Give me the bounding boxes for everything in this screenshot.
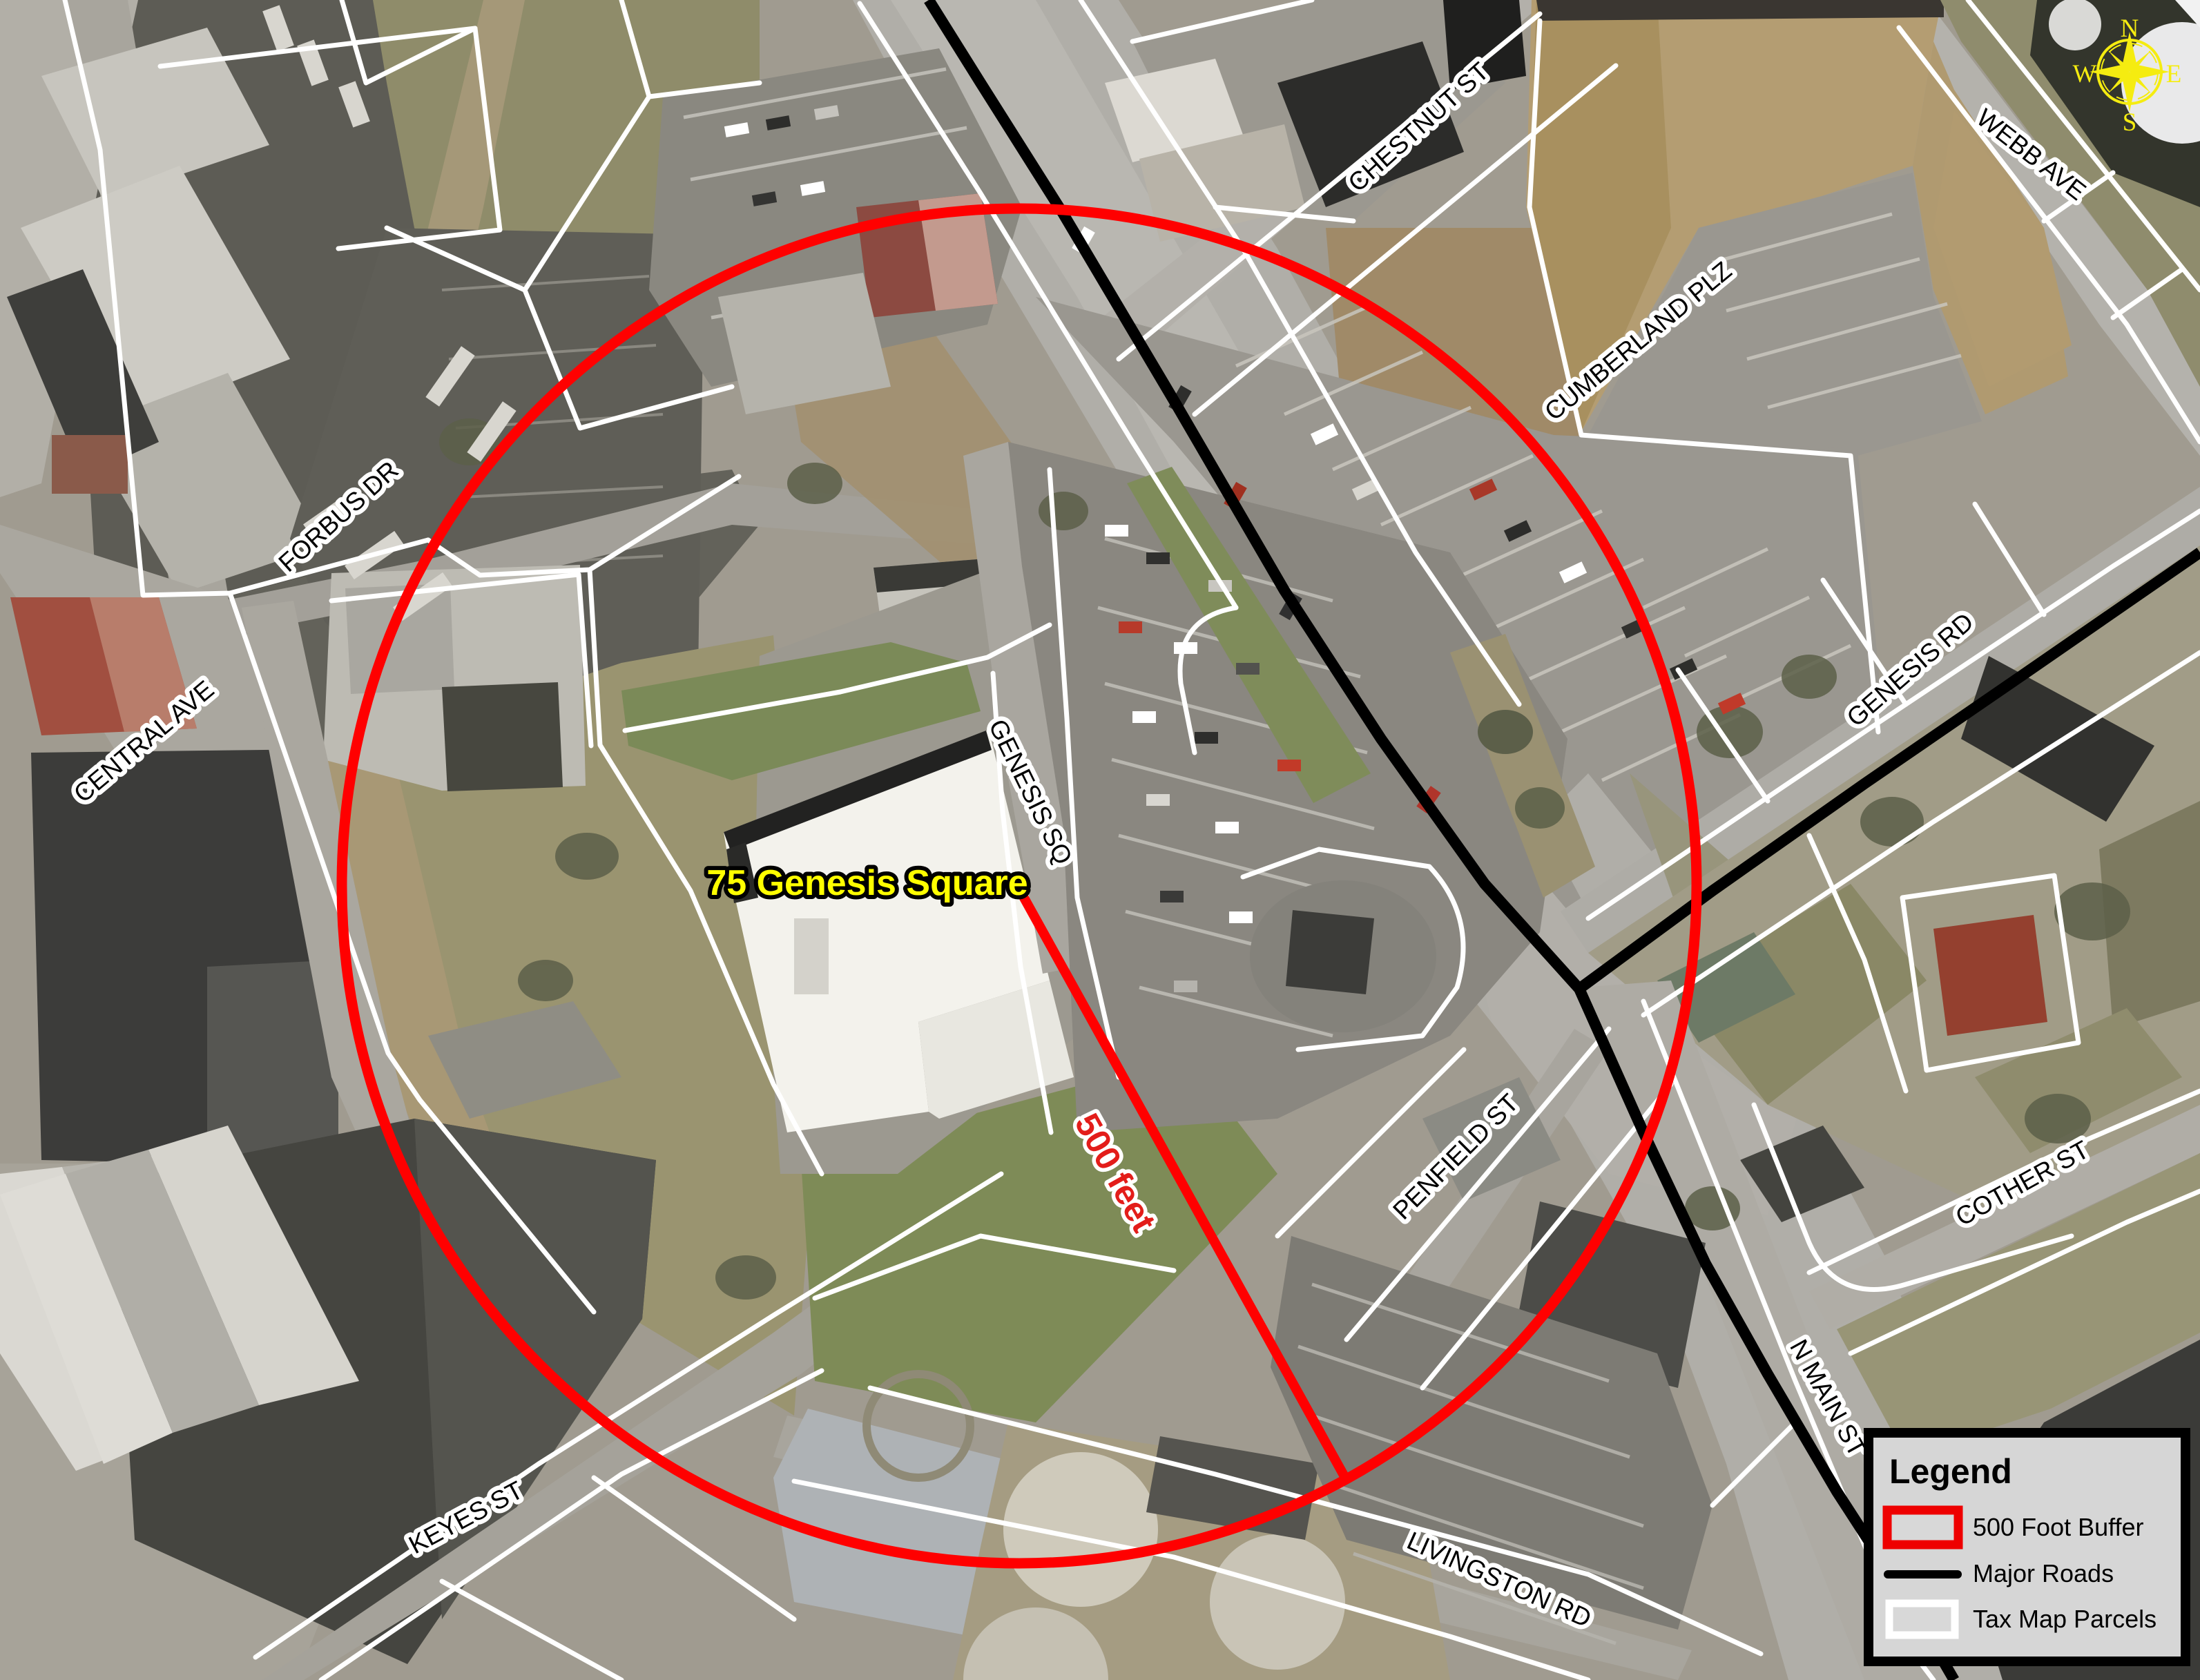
svg-text:75 Genesis Square: 75 Genesis Square	[706, 863, 1027, 903]
svg-text:Legend: Legend	[1889, 1452, 2012, 1491]
svg-text:Tax Map Parcels: Tax Map Parcels	[1973, 1605, 2156, 1633]
svg-text:N: N	[2121, 15, 2139, 43]
svg-text:S: S	[2123, 108, 2137, 137]
svg-text:W: W	[2073, 60, 2097, 88]
svg-text:500 Foot Buffer: 500 Foot Buffer	[1973, 1513, 2144, 1541]
svg-text:Major Roads: Major Roads	[1973, 1559, 2114, 1587]
svg-text:E: E	[2166, 60, 2182, 88]
